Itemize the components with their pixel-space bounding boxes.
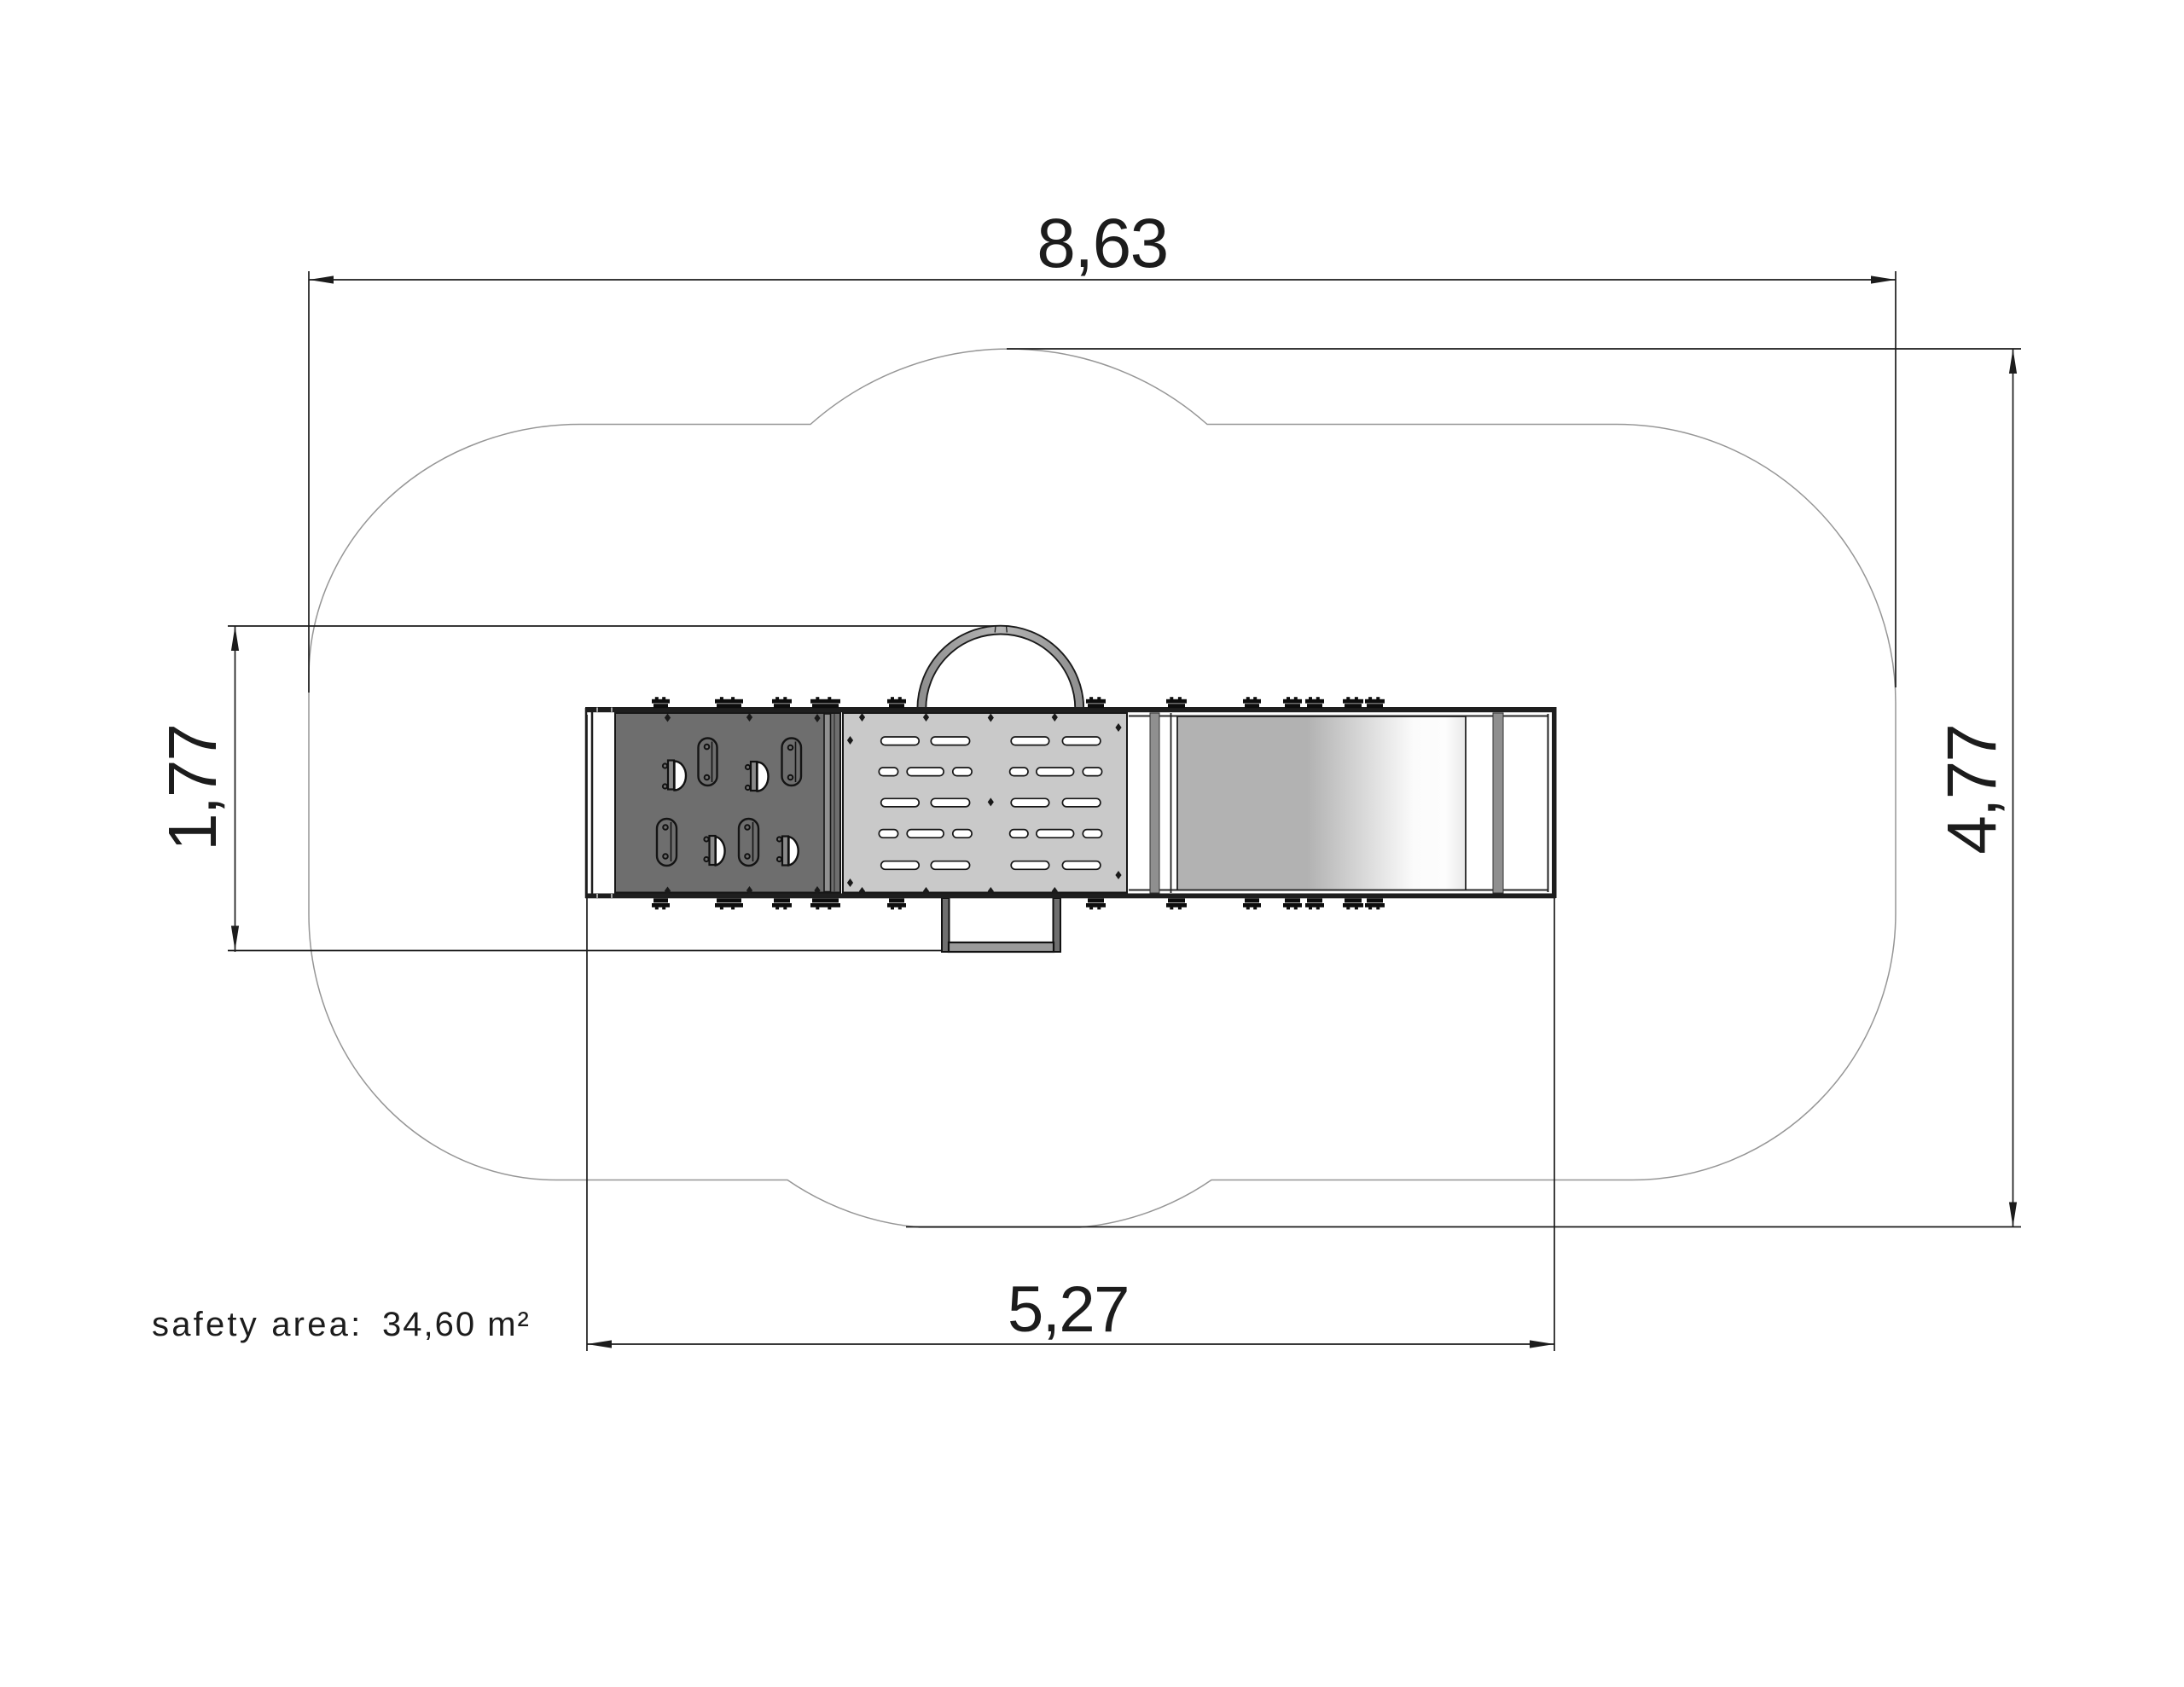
svg-text:5,27: 5,27 xyxy=(1008,1273,1129,1346)
svg-text:1,77: 1,77 xyxy=(154,725,230,851)
svg-text:safety area:: safety area: xyxy=(152,1306,363,1343)
svg-text:8,63: 8,63 xyxy=(1037,205,1168,282)
svg-text:34,60 m²: 34,60 m² xyxy=(382,1306,531,1343)
svg-text:4,77: 4,77 xyxy=(1933,725,2011,855)
